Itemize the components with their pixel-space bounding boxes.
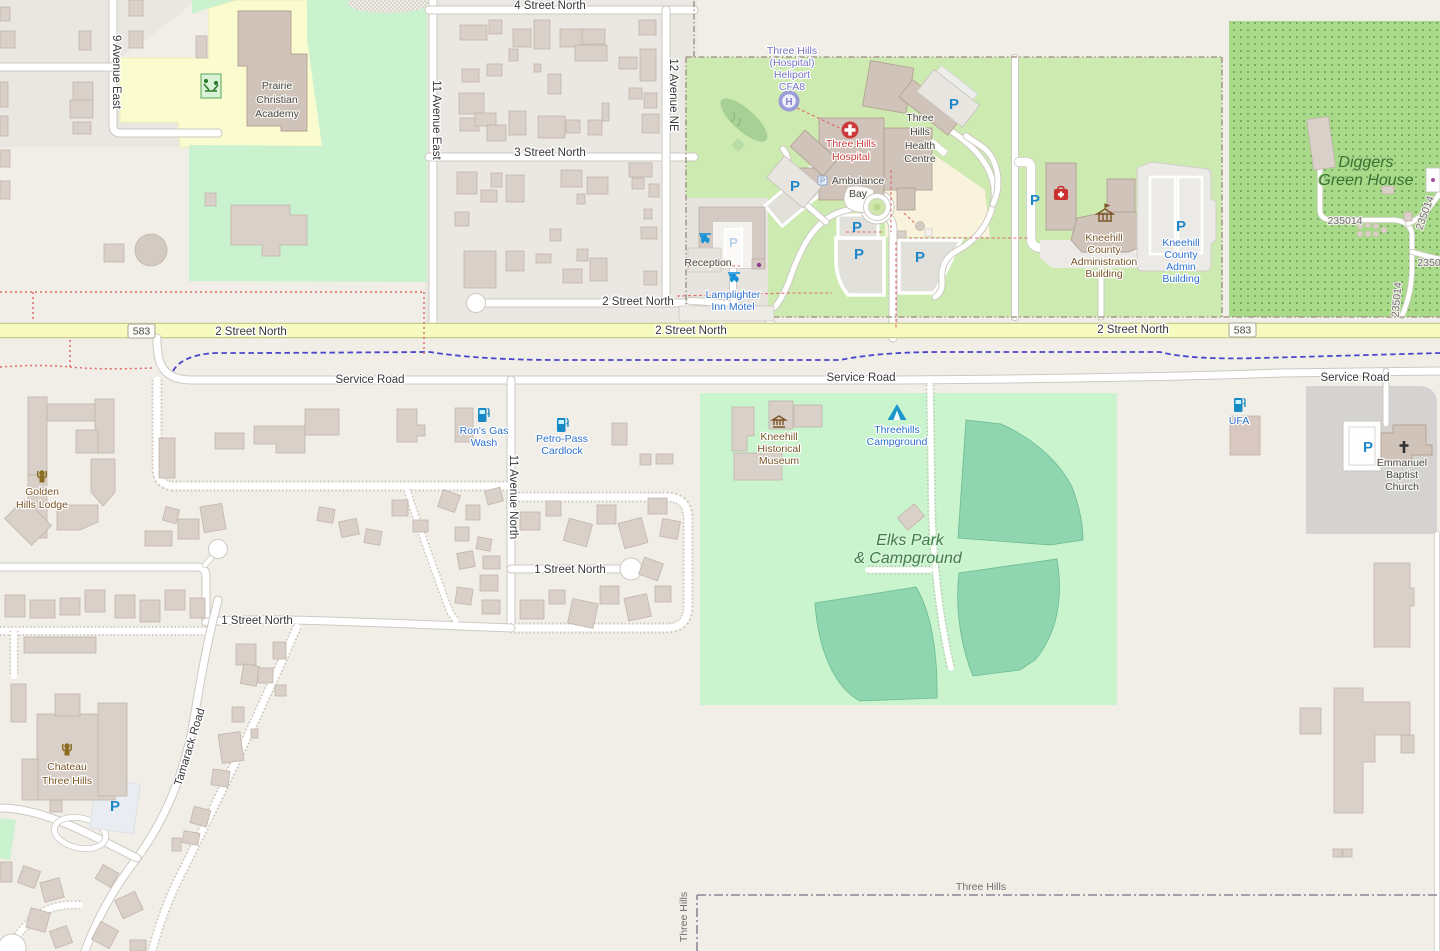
- svg-text:Kneehill: Kneehill: [1162, 237, 1199, 249]
- svg-text:2 Street North: 2 Street North: [215, 326, 287, 338]
- svg-text:Academy: Academy: [255, 108, 300, 120]
- svg-text:Wash: Wash: [471, 437, 498, 449]
- svg-text:Hospital: Hospital: [832, 151, 870, 163]
- svg-text:Ambulance: Ambulance: [832, 175, 885, 187]
- svg-text:Chateau: Chateau: [47, 761, 87, 773]
- svg-text:P: P: [1176, 218, 1186, 235]
- svg-text:County: County: [1087, 244, 1121, 256]
- svg-text:2350: 2350: [1417, 257, 1440, 269]
- svg-text:P: P: [949, 96, 959, 113]
- svg-text:Church: Church: [1385, 481, 1419, 493]
- svg-text:P: P: [110, 798, 120, 815]
- svg-text:Golden: Golden: [25, 486, 59, 498]
- svg-text:Hills: Hills: [910, 126, 930, 138]
- svg-text:11 Avenue North: 11 Avenue North: [507, 455, 519, 540]
- svg-text:& Campground: & Campground: [854, 550, 963, 567]
- svg-text:Prairie: Prairie: [262, 80, 293, 92]
- svg-text:Threehills: Threehills: [874, 424, 920, 436]
- svg-text:P: P: [1363, 439, 1373, 456]
- svg-text:Ron's Gas: Ron's Gas: [460, 425, 509, 437]
- svg-text:12 Avenue NE: 12 Avenue NE: [667, 58, 679, 132]
- svg-text:Admin: Admin: [1166, 261, 1196, 273]
- svg-text:583: 583: [1234, 325, 1252, 337]
- svg-text:3 Street North: 3 Street North: [514, 147, 586, 159]
- svg-text:P: P: [854, 246, 864, 263]
- svg-text:583: 583: [133, 326, 151, 338]
- svg-text:Kneehill: Kneehill: [1085, 232, 1122, 244]
- svg-text:County: County: [1164, 249, 1198, 261]
- svg-text:Kneehill: Kneehill: [760, 431, 797, 443]
- svg-text:2 Street North: 2 Street North: [655, 325, 727, 337]
- svg-text:Diggers: Diggers: [1338, 154, 1393, 171]
- svg-text:Inn Motel: Inn Motel: [711, 301, 754, 313]
- svg-text:H: H: [785, 97, 792, 108]
- svg-text:P: P: [915, 249, 925, 266]
- svg-text:UFA: UFA: [1229, 415, 1249, 427]
- svg-text:Three Hills: Three Hills: [767, 45, 817, 57]
- svg-text:Health: Health: [905, 140, 936, 152]
- svg-text:Historical: Historical: [757, 443, 800, 455]
- svg-text:Service Road: Service Road: [1320, 372, 1389, 384]
- svg-text:P: P: [1030, 192, 1040, 209]
- svg-text:Reception: Reception: [684, 257, 731, 269]
- svg-text:Elks Park: Elks Park: [876, 532, 945, 549]
- svg-text:Baptist: Baptist: [1386, 469, 1418, 481]
- svg-text:Three Hills: Three Hills: [826, 138, 876, 150]
- svg-text:CFA8: CFA8: [779, 81, 805, 93]
- svg-text:1 Street North: 1 Street North: [221, 615, 293, 627]
- svg-text:Three: Three: [906, 112, 934, 124]
- svg-text:Christian: Christian: [256, 94, 298, 106]
- svg-text:2 Street North: 2 Street North: [1097, 324, 1169, 336]
- svg-text:Petro-Pass: Petro-Pass: [536, 433, 588, 445]
- svg-text:Service Road: Service Road: [826, 372, 895, 384]
- svg-text:Three Hills: Three Hills: [678, 892, 690, 942]
- svg-text:Three Hills: Three Hills: [956, 881, 1006, 893]
- svg-text:Three Hills: Three Hills: [42, 775, 92, 787]
- svg-text:235014: 235014: [1327, 215, 1362, 227]
- svg-text:Lamplighter: Lamplighter: [706, 289, 761, 301]
- svg-text:Building: Building: [1162, 273, 1200, 285]
- svg-text:Administration: Administration: [1071, 256, 1138, 268]
- svg-text:Green House: Green House: [1318, 172, 1413, 189]
- svg-text:Heliport: Heliport: [774, 69, 810, 81]
- svg-text:1 Street North: 1 Street North: [534, 564, 606, 576]
- svg-text:Campground: Campground: [867, 436, 928, 448]
- svg-text:(Hospital): (Hospital): [770, 57, 815, 69]
- svg-text:P: P: [852, 219, 862, 236]
- svg-text:Building: Building: [1085, 268, 1123, 280]
- svg-text:11 Avenue East: 11 Avenue East: [430, 80, 442, 160]
- svg-text:Service Road: Service Road: [335, 374, 404, 386]
- svg-text:Cardlock: Cardlock: [541, 445, 583, 457]
- svg-text:Emmanuel: Emmanuel: [1377, 457, 1427, 469]
- svg-text:Centre: Centre: [904, 153, 936, 165]
- svg-text:Bay: Bay: [849, 188, 868, 200]
- svg-text:4 Street North: 4 Street North: [514, 0, 586, 12]
- svg-text:P: P: [790, 178, 800, 195]
- svg-text:9 Avenue East: 9 Avenue East: [110, 35, 122, 110]
- svg-text:P: P: [820, 177, 826, 186]
- svg-text:Hills Lodge: Hills Lodge: [16, 499, 68, 511]
- svg-text:P: P: [729, 235, 738, 250]
- svg-text:Museum: Museum: [759, 455, 800, 467]
- svg-text:2 Street North: 2 Street North: [602, 296, 674, 308]
